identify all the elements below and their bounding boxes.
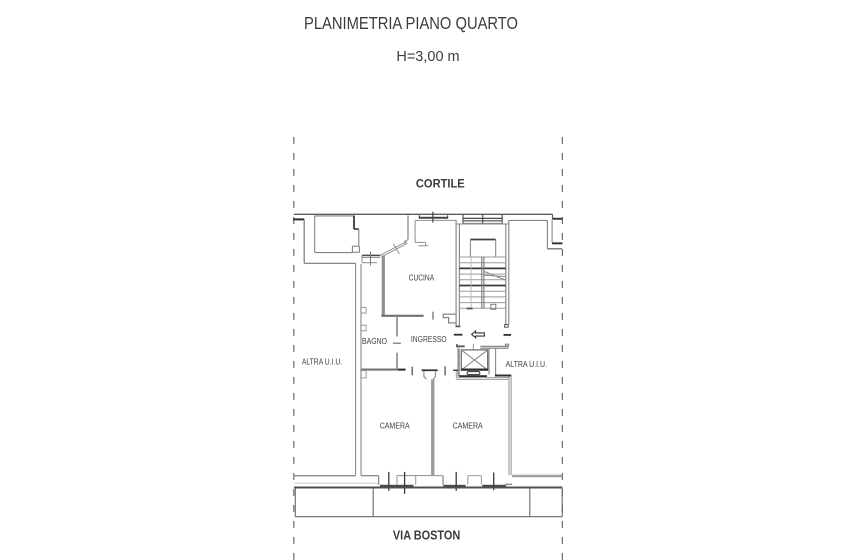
svg-text:ALTRA U.I.U.: ALTRA U.I.U. bbox=[506, 359, 547, 369]
svg-text:ALTRA U.I.U.: ALTRA U.I.U. bbox=[302, 357, 342, 367]
svg-text:H=3,00 m: H=3,00 m bbox=[396, 49, 459, 65]
svg-text:BAGNO: BAGNO bbox=[362, 336, 387, 346]
svg-text:CORTILE: CORTILE bbox=[416, 179, 465, 191]
svg-text:CAMERA: CAMERA bbox=[453, 421, 483, 431]
svg-text:PLANIMETRIA PIANO QUARTO: PLANIMETRIA PIANO QUARTO bbox=[304, 13, 518, 33]
svg-text:CUCINA: CUCINA bbox=[409, 272, 435, 282]
svg-text:INGRESSO: INGRESSO bbox=[411, 334, 447, 344]
svg-text:CAMERA: CAMERA bbox=[380, 421, 410, 431]
svg-text:VIA BOSTON: VIA BOSTON bbox=[393, 528, 460, 543]
